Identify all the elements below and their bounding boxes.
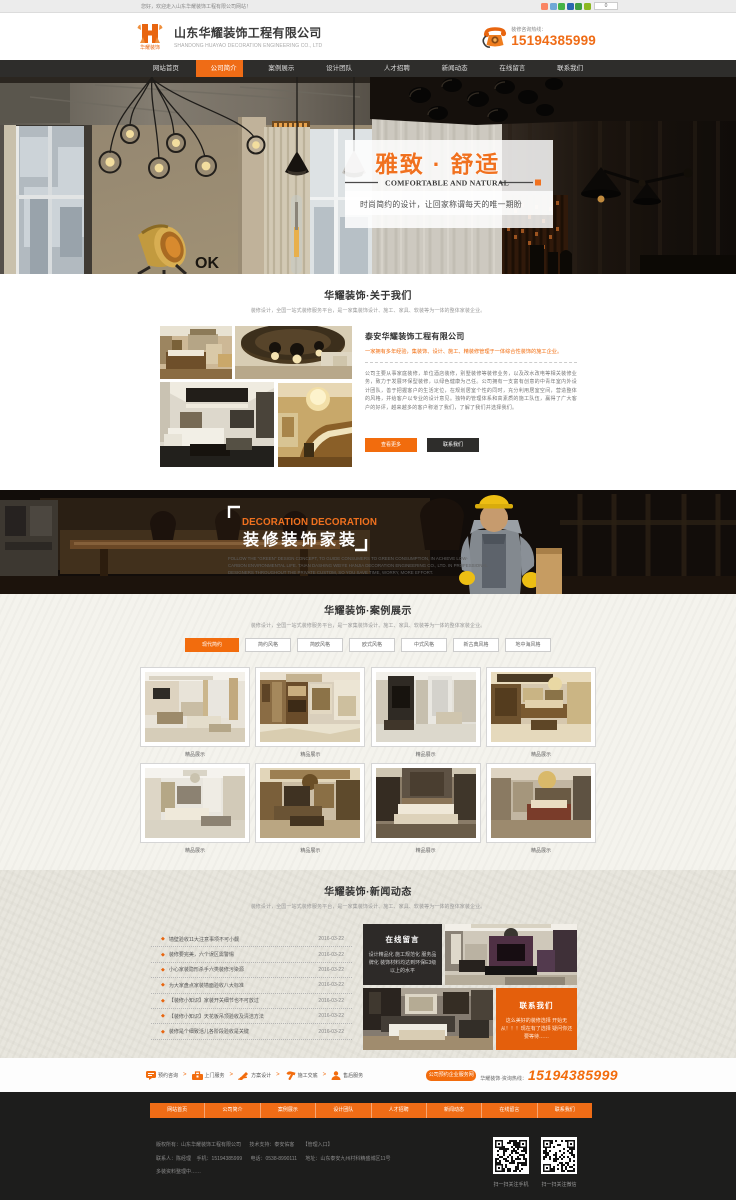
svg-text:COMFORTABLE AND NATURAL: COMFORTABLE AND NATURAL — [385, 179, 509, 188]
svg-text:雅致 · 舒适: 雅致 · 舒适 — [375, 151, 500, 177]
svg-text:FOLLOW THE "GREEN" DESIGN CONC: FOLLOW THE "GREEN" DESIGN CONCEPT, TO GU… — [228, 556, 468, 561]
svg-text:OK: OK — [195, 255, 219, 272]
svg-text:装修装饰家装: 装修装饰家装 — [242, 530, 358, 549]
svg-text:DESIGNERS THROUGHOUT THE PRIVA: DESIGNERS THROUGHOUT THE PRIVATE CUSTOM,… — [228, 570, 433, 575]
svg-text:CARBON ENVIRONMENTAL LIFE. TAI: CARBON ENVIRONMENTAL LIFE. TAIAN DASHING… — [228, 563, 488, 568]
svg-text:时尚简约的设计，让回家称谓每天的唯一期盼: 时尚简约的设计，让回家称谓每天的唯一期盼 — [360, 199, 522, 209]
svg-text:DECORATION DECORATION: DECORATION DECORATION — [242, 517, 377, 528]
